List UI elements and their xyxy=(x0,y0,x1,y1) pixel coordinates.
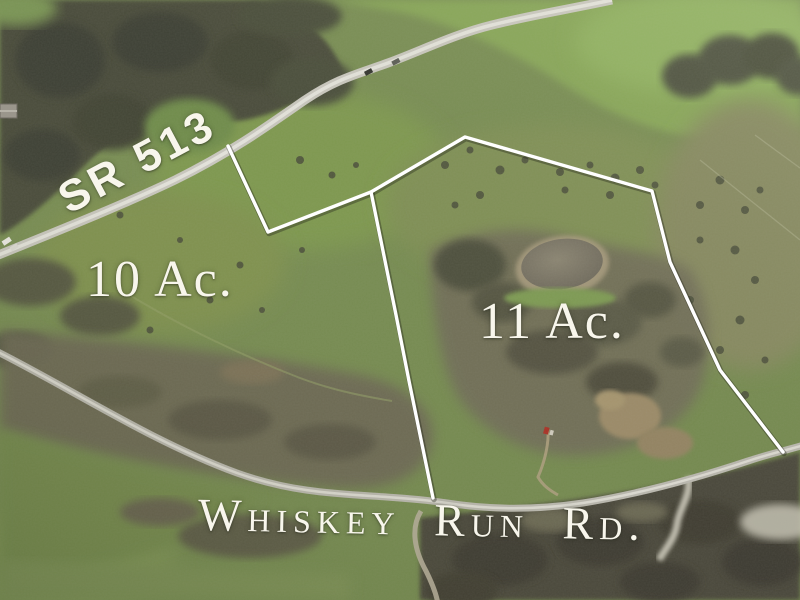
road-label-whiskey-run: Whiskey Run Rd. xyxy=(198,492,647,548)
parcel-acreage-label-left: 10 Ac. xyxy=(86,254,234,306)
parcel-acreage-label-right: 11 Ac. xyxy=(479,296,625,348)
aerial-photo: SR 513 10 Ac. 11 Ac. Whiskey Run Rd. xyxy=(0,0,800,600)
